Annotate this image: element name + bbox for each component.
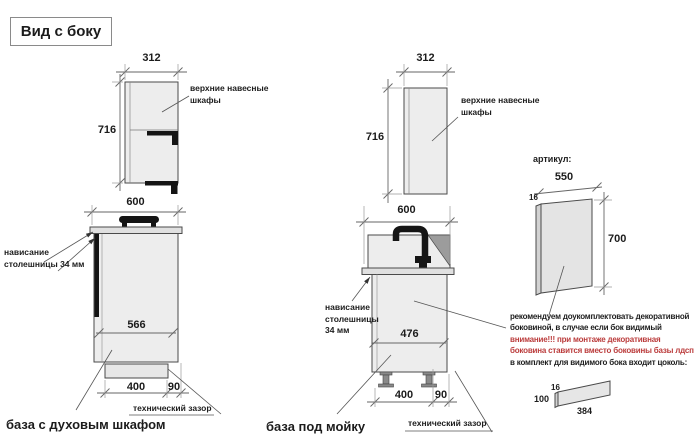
decor-panel-drawing (534, 183, 612, 316)
dim-height-label: 716 (96, 124, 118, 136)
dim-plinth-label: 400 (105, 381, 167, 393)
wall-cabinet-label: верхние навесные шкафы (190, 83, 269, 106)
note-line: в комплект для видимого бока входит цоко… (510, 357, 694, 368)
artikul-label: артикул: (533, 154, 571, 164)
adjustable-feet (379, 372, 437, 387)
base-sink-body (372, 275, 447, 373)
dim-gap-label: 90 (431, 389, 451, 401)
base-oven-body (94, 234, 178, 363)
dim-height-label: 100 (534, 394, 549, 404)
wall-cabinet-mid-drawing (382, 64, 458, 203)
dim-width-label: 312 (125, 52, 178, 64)
dim-width-label: 600 (380, 204, 433, 216)
side-view-drawing: Вид с боку 312 716 верхние навесные шкаф… (0, 0, 700, 438)
warning-line: внимание!!! при монтаже декоративная (510, 334, 694, 345)
dim-depth-label: 566 (110, 319, 163, 331)
technical-gap-label: технический зазор (408, 418, 487, 430)
dim-width-label: 550 (541, 171, 587, 183)
drawing-linework (0, 0, 700, 438)
dim-height-label: 700 (608, 233, 626, 245)
overhang-label: нависание столешницы 34 мм (325, 302, 379, 337)
plinth-part-drawing (555, 381, 610, 408)
page-title: Вид с боку (10, 17, 112, 46)
dim-gap-label: 90 (164, 381, 184, 393)
technical-gap-label: технический зазор (133, 403, 212, 415)
oven-door-strip (95, 234, 100, 317)
recommendation-note: рекомендуем доукомплектовать декоративно… (510, 311, 694, 368)
wall-cabinet-label: верхние навесные шкафы (461, 95, 540, 118)
dim-height-label: 716 (364, 131, 386, 143)
dim-plinth-label: 400 (375, 389, 433, 401)
warning-line: боковина ставится вместо боковины базы л… (510, 345, 694, 356)
overhang-label: нависание столешницы 34 мм (4, 247, 84, 270)
dim-depth-label: 476 (383, 328, 436, 340)
dim-thickness-label: 16 (529, 193, 538, 202)
arrowhead-icon (364, 277, 370, 284)
dim-thickness-label: 16 (551, 383, 560, 392)
panel-face (541, 199, 592, 293)
faucet-base (415, 256, 431, 263)
wall-cabinet-left-drawing (112, 64, 189, 194)
wall-cabinet-mid-body (404, 88, 447, 194)
dim-length-label: 384 (577, 406, 592, 416)
plinth-recess (105, 364, 168, 378)
note-line: рекомендуем доукомплектовать декоративно… (510, 311, 694, 322)
plinth-face (558, 381, 610, 406)
note-line: боковиной, в случае если бок видимый (510, 322, 694, 333)
countertop (90, 227, 182, 234)
dim-width-label: 312 (404, 52, 447, 64)
caption-base-sink: база под мойку (266, 419, 365, 434)
countertop (362, 268, 454, 275)
arrowhead-icon (86, 232, 93, 238)
dim-width-label: 600 (109, 196, 162, 208)
caption-base-oven: база с духовым шкафом (6, 417, 166, 432)
panel-edge (536, 204, 541, 295)
